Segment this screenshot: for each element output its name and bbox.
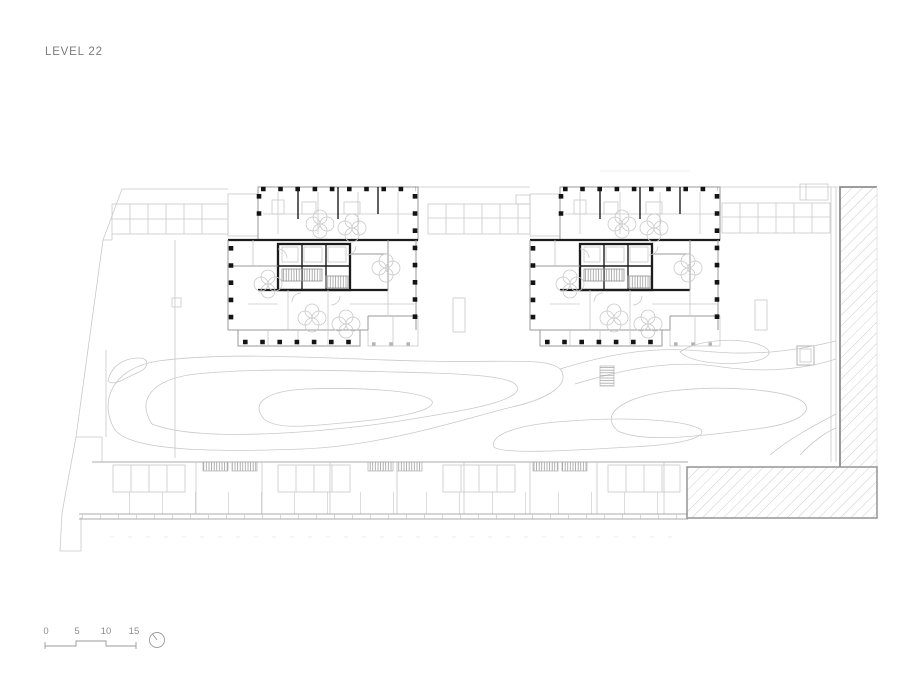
- bottom-units-strip: [79, 462, 688, 537]
- podium-top-units: [103, 184, 838, 462]
- garden-stair: [600, 366, 614, 386]
- drawing-sheet: LEVEL 22: [0, 0, 920, 690]
- scale-label: 0: [43, 626, 48, 637]
- right-tower-plan: [530, 187, 720, 346]
- scale-label: 5: [74, 626, 79, 637]
- left-tower-plan: [228, 187, 418, 346]
- level-title: LEVEL 22: [45, 46, 103, 58]
- scale-bar: 0 5 10 15: [43, 626, 139, 649]
- scale-label: 10: [101, 626, 112, 637]
- scale-label: 15: [129, 626, 140, 637]
- floor-plan-drawing: LEVEL 22: [0, 0, 920, 690]
- north-arrow-icon: [150, 633, 165, 648]
- roof-garden-landscape: [108, 340, 836, 455]
